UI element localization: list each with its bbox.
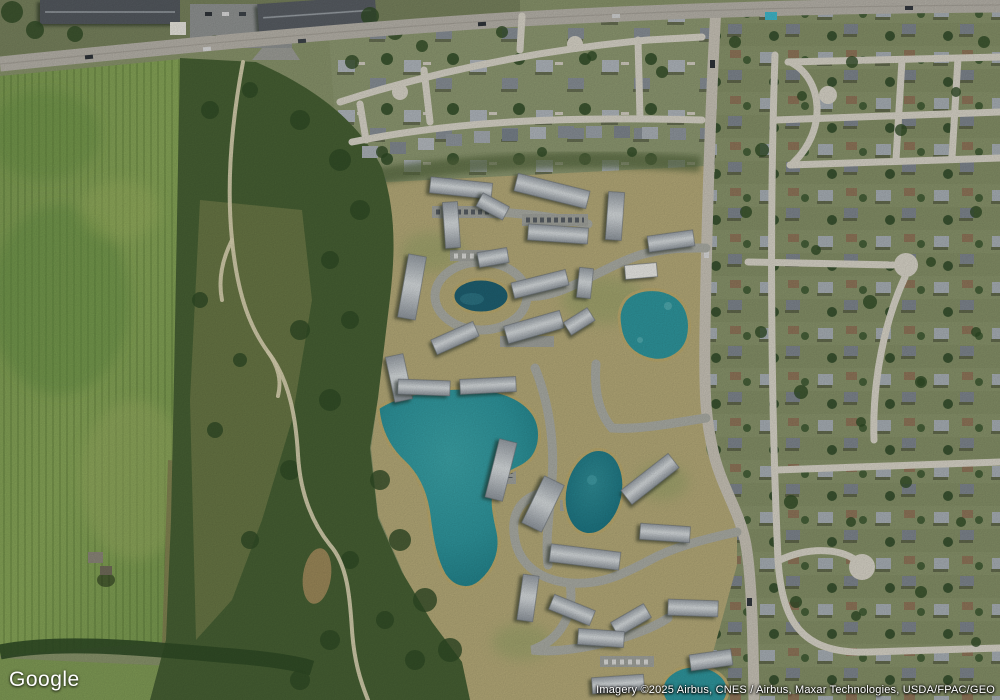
satellite-map[interactable] — [0, 0, 1000, 700]
google-logo[interactable]: Google — [9, 668, 80, 692]
map-attribution: Imagery ©2025 Airbus, CNES / Airbus, Max… — [596, 684, 995, 696]
image-grain — [0, 0, 1000, 700]
map-viewport[interactable]: Google Imagery ©2025 Airbus, CNES / Airb… — [0, 0, 1000, 700]
